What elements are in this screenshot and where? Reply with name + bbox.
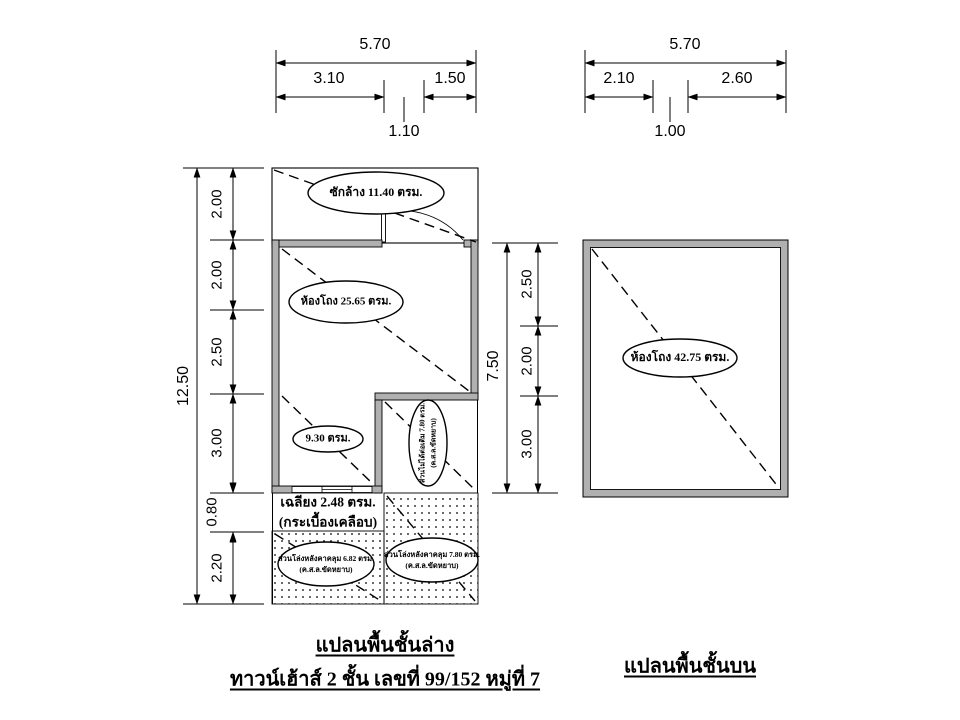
label-open-left-line2: (ค.ส.ล.ขัดหยาบ) — [278, 564, 374, 575]
ground-plan-subcaption: ทาวน์เฮ้าส์ 2 ชั้น เลขที่ 99/152 หมู่ที่… — [230, 669, 540, 692]
ground-plan-caption: แปลนพื้นชั้นล่าง — [316, 635, 455, 658]
dim-height-seg-4: 0.80 — [203, 497, 220, 526]
dim-ground-height-total: 12.50 — [175, 366, 193, 406]
wall-inner-vertical — [375, 400, 382, 493]
label-open-right-line1: ส่วนโล่งหลังคาคลุม 7.80 ตรม. — [384, 549, 480, 560]
label-porch-line2: (กระเบื้องเคลือบ) — [279, 512, 377, 532]
label-unroofed-line2: (ค.ส.ล.ขัดหยาบ) — [428, 403, 439, 483]
dim-height-seg-2: 2.50 — [208, 337, 225, 366]
dim-inner-seg-2: 3.00 — [518, 429, 535, 458]
dim-height-seg-3: 3.00 — [208, 428, 225, 457]
dim-height-seg-0: 2.00 — [208, 189, 225, 218]
dim-ground-width-right: 1.50 — [434, 70, 465, 88]
dim-upper-width-right: 2.60 — [721, 70, 752, 88]
wall-inner-horizontal — [375, 393, 478, 400]
dim-upper-width-mid: 1.00 — [654, 123, 685, 141]
label-room-930: 9.30 ตรม. — [305, 433, 350, 446]
dim-inner-seg-0: 2.50 — [518, 269, 535, 298]
dim-inner-seg-1: 2.00 — [518, 346, 535, 375]
wall-top-left-of-door — [272, 240, 382, 247]
label-laundry: ซักล้าง 11.40 ตรม. — [330, 186, 423, 200]
dim-height-seg-1: 2.00 — [208, 260, 225, 289]
plan-linework — [0, 0, 960, 720]
dim-ground-width-left: 3.10 — [313, 70, 344, 88]
wall-left — [272, 240, 279, 493]
label-porch: เฉลียง 2.48 ตรม. (กระเบื้องเคลือบ) — [279, 492, 377, 531]
wall-right — [471, 240, 478, 400]
upper-floor-plan — [583, 240, 788, 497]
label-open-left-line1: ส่วนโล่งหลังคาคลุม 6.82 ตรม. — [278, 553, 374, 564]
label-porch-line1: เฉลียง 2.48 ตรม. — [279, 492, 377, 512]
dim-ground-width-total: 5.70 — [359, 36, 390, 54]
ground-floor-plan — [272, 168, 478, 604]
label-upper-hall: ห้องโถง 42.75 ตรม. — [631, 351, 730, 365]
dim-ground-width-mid: 1.10 — [388, 123, 419, 141]
label-open-right-line2: (ค.ส.ล.ขัดหยาบ) — [384, 560, 480, 571]
floor-plan-sheet: 5.70 3.10 1.50 1.10 5.70 2.10 2.60 1.00 … — [0, 0, 960, 720]
label-open-left: ส่วนโล่งหลังคาคลุม 6.82 ตรม. (ค.ส.ล.ขัดห… — [278, 553, 374, 576]
label-hall: ห้องโถง 25.65 ตรม. — [301, 296, 391, 309]
dim-upper-width-total: 5.70 — [669, 36, 700, 54]
door-leaf — [382, 212, 386, 242]
dim-upper-width-left: 2.10 — [603, 70, 634, 88]
upper-plan-caption: แปลนพื้นชั้นบน — [624, 656, 756, 679]
label-open-right: ส่วนโล่งหลังคาคลุม 7.80 ตรม. (ค.ส.ล.ขัดห… — [384, 549, 480, 572]
label-unroofed-line1: ส่วนไม่ได้ต่อเติม 7.80 ตรม. — [418, 403, 429, 483]
ground-walls — [272, 240, 478, 493]
dim-height-seg-5: 2.20 — [208, 553, 225, 582]
label-unroofed: ส่วนไม่ได้ต่อเติม 7.80 ตรม. (ค.ส.ล.ขัดหย… — [418, 403, 439, 483]
dim-inner-height-total: 7.50 — [485, 350, 503, 381]
